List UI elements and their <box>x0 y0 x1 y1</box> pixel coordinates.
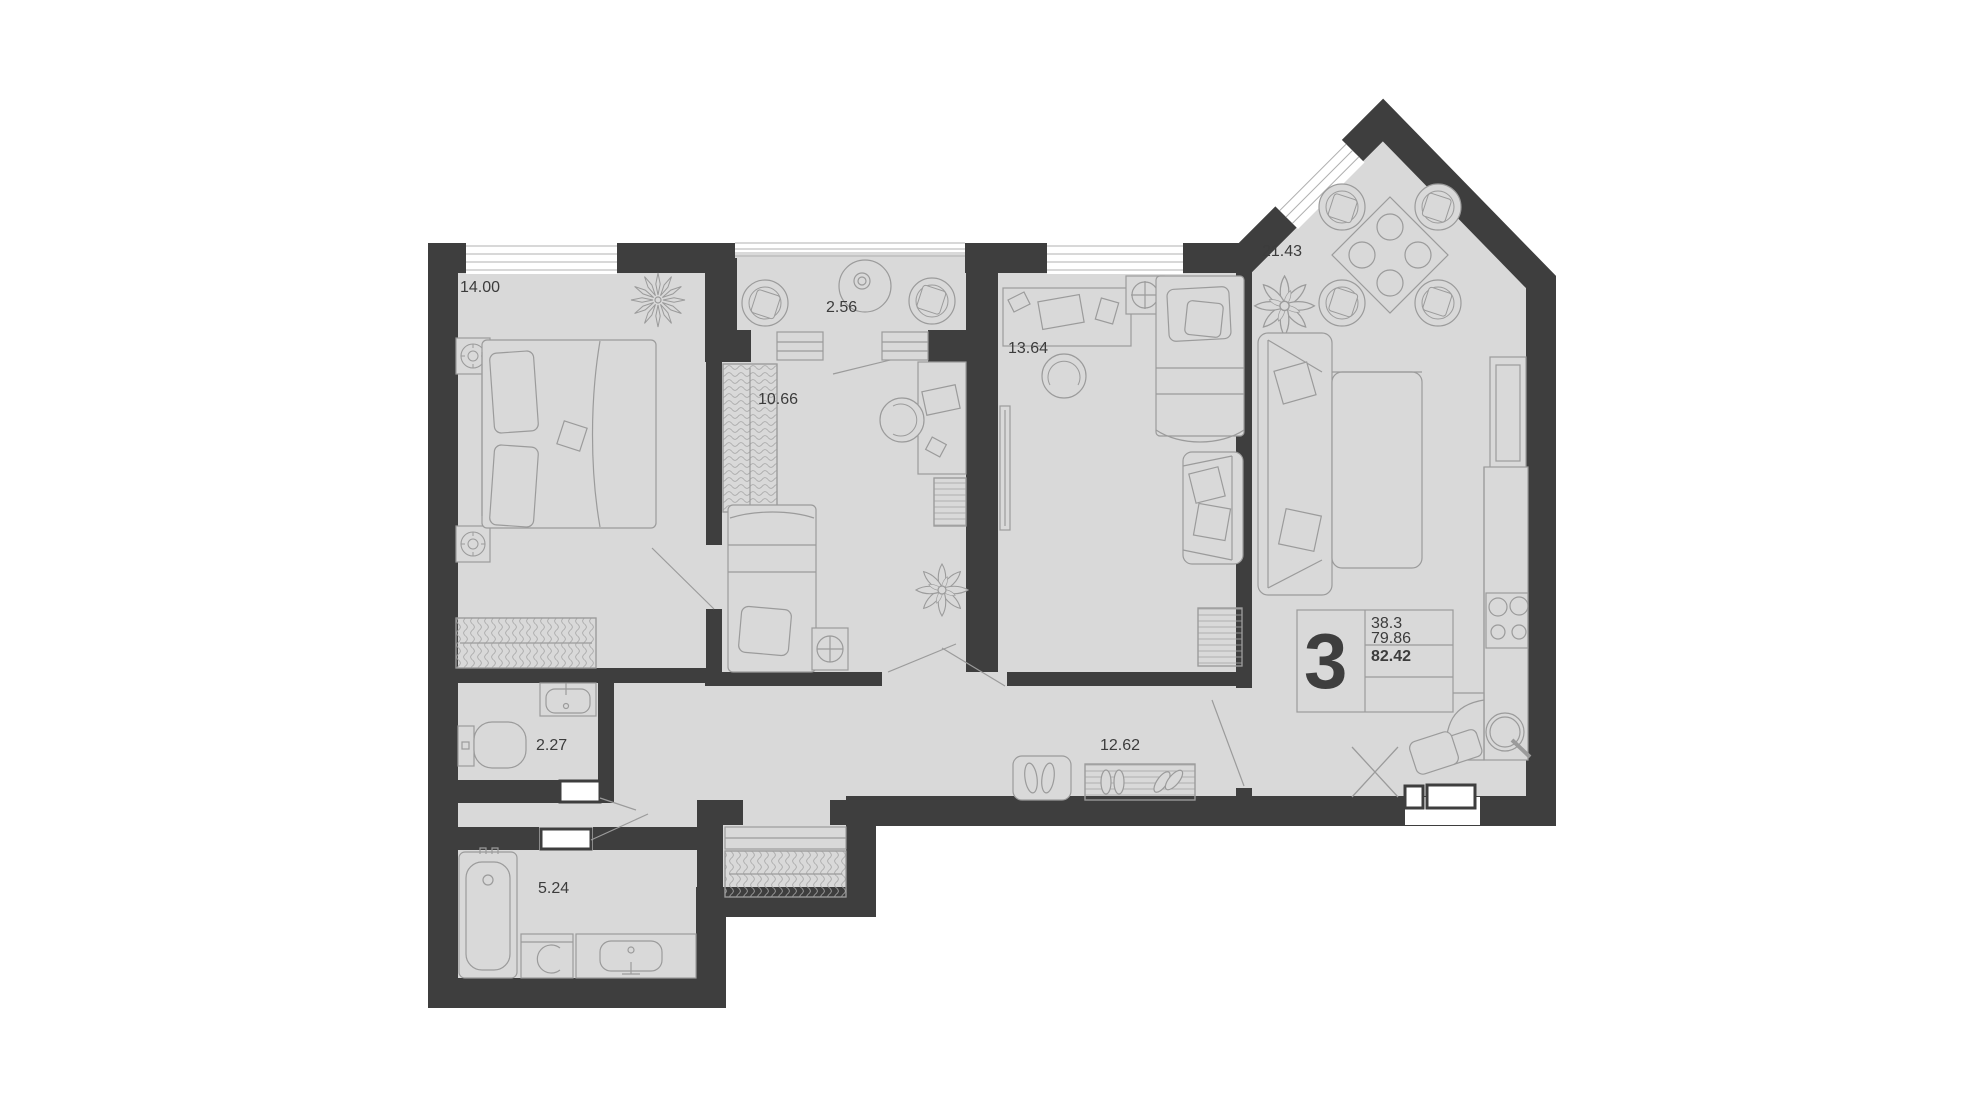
desk <box>1003 288 1131 346</box>
balcony-chair <box>909 278 955 324</box>
slipper <box>1101 770 1111 794</box>
plant-icon <box>916 564 968 616</box>
wc-sink <box>540 683 596 716</box>
slipper <box>1114 770 1124 794</box>
wardrobe <box>723 364 777 512</box>
dining-chair <box>1415 280 1461 326</box>
dining-chair <box>1415 184 1461 230</box>
desk-chair <box>1042 354 1086 398</box>
desk-chair <box>880 398 924 442</box>
label-bedroom2-area: 10.66 <box>758 391 798 408</box>
label-bedroom-area: 14.00 <box>460 279 500 296</box>
radiator <box>1198 608 1242 666</box>
plant-icon <box>1255 276 1315 336</box>
bathtub <box>459 848 517 978</box>
floor-plan-svg: 3 38.3 79.86 82.42 14.00 2.56 10.66 13.6… <box>0 0 1980 1112</box>
tall-cabinet <box>1490 357 1526 469</box>
fan-unit <box>812 628 848 670</box>
shoe-rack <box>1085 764 1195 800</box>
sofa-pillow <box>1279 509 1322 552</box>
toilet <box>458 722 526 768</box>
dresser <box>934 478 966 526</box>
corner-sofa <box>1258 333 1422 595</box>
table-lamp-icon <box>461 532 485 556</box>
label-wc-area: 2.27 <box>536 737 567 754</box>
label-balcony-area: 2.56 <box>826 299 857 316</box>
bed-pillow <box>1184 300 1223 338</box>
sofa-pillow <box>1193 503 1230 540</box>
legend-apartment-area: 79.86 <box>1371 630 1411 647</box>
sofa-pillow <box>1189 467 1225 503</box>
bedroom-window <box>466 238 617 274</box>
shoe-mat <box>1013 756 1071 800</box>
double-bed <box>482 340 656 528</box>
bed-pillow <box>489 445 538 528</box>
washing-machine <box>521 934 573 978</box>
dining-chair <box>1319 280 1365 326</box>
wardrobe <box>456 618 596 668</box>
planter-box <box>777 332 823 360</box>
label-bathroom-area: 5.24 <box>538 880 569 897</box>
planter-box <box>882 332 928 360</box>
dining-chair <box>1319 184 1365 230</box>
label-bedroom3-area: 13.64 <box>1008 340 1048 357</box>
sofa <box>1183 452 1243 564</box>
bathroom-sink <box>576 934 696 978</box>
label-hallway-area: 12.62 <box>1100 737 1140 754</box>
label-kitchen-living-area: 21.43 <box>1262 243 1302 260</box>
single-bed <box>1156 276 1244 442</box>
legend-total-area: 82.42 <box>1371 648 1411 665</box>
tv-panel <box>1000 406 1010 530</box>
legend: 3 38.3 79.86 82.42 <box>1297 610 1453 712</box>
bed-pillow <box>489 351 538 434</box>
balcony-chair <box>742 280 788 326</box>
desk <box>918 362 966 474</box>
floor-plan-page: 3 38.3 79.86 82.42 14.00 2.56 10.66 13.6… <box>0 0 1980 1112</box>
dining-set <box>1319 184 1461 326</box>
bed-pillow <box>738 606 792 656</box>
closet-niche <box>725 827 846 897</box>
legend-rooms-count: 3 <box>1304 617 1347 705</box>
bedroom3-window <box>1047 238 1183 274</box>
single-bed <box>728 505 816 672</box>
